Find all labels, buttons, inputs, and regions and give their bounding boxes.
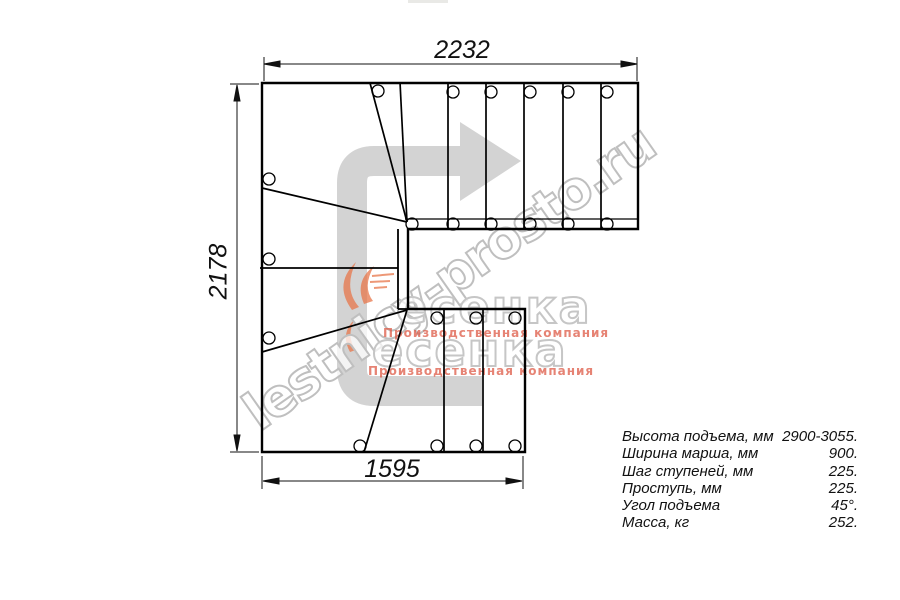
spec-row-width: Ширина марша, мм 900. xyxy=(622,445,858,462)
spec-label: Масса, кг xyxy=(622,514,689,531)
top-flight-treads xyxy=(448,83,601,229)
spec-row-tread: Проступь, мм 225. xyxy=(622,480,858,497)
upper-winder-treads xyxy=(262,82,407,222)
dimension-lines xyxy=(230,57,637,489)
spec-value: 45°. xyxy=(831,497,858,514)
spec-row-height: Высота подъема, мм 2900-3055. xyxy=(622,428,858,445)
dimension-left-label: 2178 xyxy=(205,222,234,322)
spec-row-step: Шаг ступеней, мм 225. xyxy=(622,463,858,480)
staircase-plan-drawing: lestnicy-prosto.ru есенка Производственн… xyxy=(0,0,900,600)
spec-label: Высота подъема, мм xyxy=(622,428,774,445)
spec-value: 2900-3055. xyxy=(782,428,858,445)
lower-winder-treads xyxy=(262,310,407,452)
spec-value: 900. xyxy=(829,445,858,462)
spec-value: 225. xyxy=(829,480,858,497)
spec-table: Высота подъема, мм 2900-3055. Ширина мар… xyxy=(622,428,858,532)
spec-label: Угол подъема xyxy=(622,497,720,514)
spec-value: 252. xyxy=(829,514,858,531)
dimension-top-label: 2232 xyxy=(402,36,522,65)
spec-label: Шаг ступеней, мм xyxy=(622,463,753,480)
spec-label: Ширина марша, мм xyxy=(622,445,758,462)
spec-value: 225. xyxy=(829,463,858,480)
dimension-bottom-label: 1595 xyxy=(342,455,442,484)
spec-row-angle: Угол подъема 45°. xyxy=(622,497,858,514)
spec-label: Проступь, мм xyxy=(622,480,722,497)
spec-row-mass: Масса, кг 252. xyxy=(622,514,858,531)
bottom-flight-treads xyxy=(444,309,483,452)
